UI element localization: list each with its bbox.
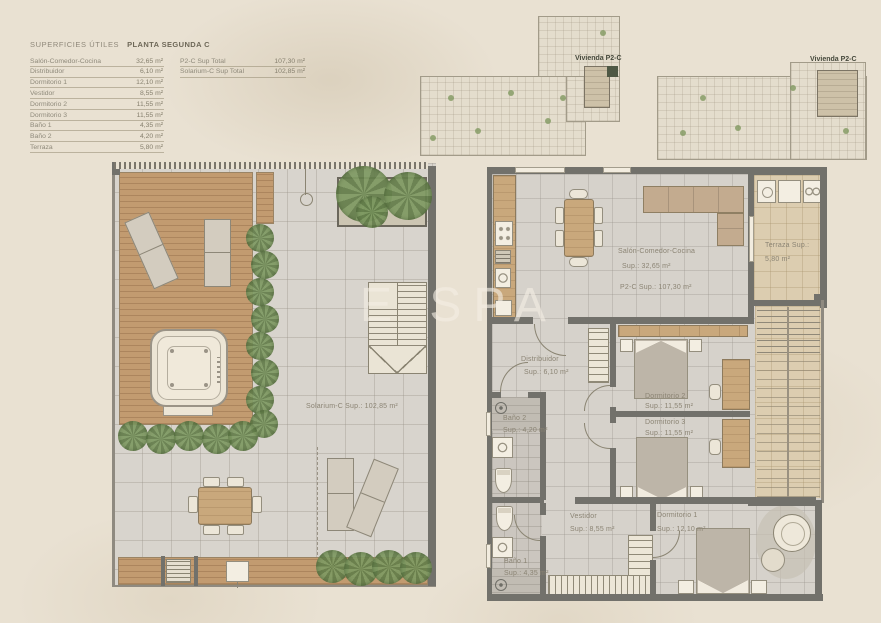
bano1-label: Baño 1 xyxy=(504,558,527,565)
distribuidor-closet xyxy=(588,328,609,383)
dining-chair xyxy=(569,189,588,199)
window-bano1 xyxy=(486,544,491,568)
bano1-sup-label: Sup.: 4,35 m² xyxy=(504,570,549,577)
wall-corridor-1 xyxy=(610,317,616,387)
wall-corridor-3 xyxy=(610,448,616,503)
outdoor-chair xyxy=(203,525,220,535)
dorm1-sup-label: Sup.: 12,10 m² xyxy=(657,526,706,533)
distribuidor-sup-label: Sup.: 6,10 m² xyxy=(524,369,569,376)
solarium-left-wall xyxy=(112,163,115,587)
nightstand xyxy=(751,580,767,594)
nightstand xyxy=(689,339,702,352)
wall-terraza-top xyxy=(748,167,827,175)
wall-bano1-right-a xyxy=(540,503,546,515)
legend-row: Baño 14,35 m² xyxy=(30,121,164,132)
legend-row: Distribuidor6,10 m² xyxy=(30,67,164,78)
stairs-rail xyxy=(787,307,789,497)
legend-title-prefix: SUPERFICIES ÚTILES xyxy=(30,40,119,49)
outdoor-chair xyxy=(188,496,198,513)
deck-bench xyxy=(226,561,249,582)
bed-pillows xyxy=(698,580,748,593)
dining-chair xyxy=(569,257,588,267)
wall-bano2-bano1 xyxy=(487,497,544,503)
wall-vestidor-dorm1-b xyxy=(650,560,656,596)
sun-lounger xyxy=(204,219,231,287)
paving-change-line xyxy=(317,447,318,555)
wall-salon-distribuidor xyxy=(487,317,533,324)
outdoor-chair xyxy=(203,477,220,487)
legend-title: SUPERFICIES ÚTILESPLANTA SEGUNDA C xyxy=(30,40,306,49)
outdoor-chair xyxy=(252,496,262,513)
legend-row: Vestidor8,55 m² xyxy=(30,88,164,99)
legend-row: Baño 24,20 m² xyxy=(30,131,164,142)
tree-plant xyxy=(384,172,432,220)
desk-chair xyxy=(709,439,721,455)
wall-vestidor-dorm1-a xyxy=(650,503,656,531)
wall-bano1-right-b xyxy=(540,536,546,595)
desk-dorm2 xyxy=(722,359,750,410)
solarium-top-railing xyxy=(114,162,428,169)
desk-dorm3 xyxy=(722,419,750,468)
sink-bano1 xyxy=(492,537,513,558)
legend-totals-table: P2-C Sup Total107,30 m² Solarium-C Sup T… xyxy=(180,56,306,78)
distribuidor-label: Distribuidor xyxy=(521,356,559,363)
wall-terraza-right xyxy=(820,167,827,308)
sofa xyxy=(643,186,744,213)
kitchen-appliance xyxy=(495,300,512,316)
window-salon-1 xyxy=(515,167,565,173)
dorm3-sup-label: Sup.: 11,55 m² xyxy=(645,430,693,437)
outdoor-shower-icon xyxy=(300,193,313,206)
vestidor-sup-label: Sup.: 8,55 m² xyxy=(570,526,615,533)
wall-dorm1-right xyxy=(815,500,822,595)
wall-dorm3-dorm1 xyxy=(616,497,816,504)
sofa-chaise xyxy=(717,213,744,246)
washer-icon xyxy=(757,180,776,203)
shower-pole xyxy=(305,169,306,195)
kitchen-sink-icon xyxy=(495,268,511,288)
keyplan1-label: Vivienda P2-C xyxy=(575,55,622,62)
side-table xyxy=(761,548,785,572)
deck-post xyxy=(161,556,165,586)
legend-room-table: Salón-Comedor-Cocina32,65 m² Distribuido… xyxy=(30,56,164,153)
legend-row: Terraza5,80 m² xyxy=(30,142,164,153)
legend-total-row: Solarium-C Sup Total102,85 m² xyxy=(180,67,306,78)
wood-deck-strip xyxy=(256,172,274,224)
legend-row: Dormitorio 112,10 m² xyxy=(30,78,164,89)
stove-icon xyxy=(495,221,513,246)
legend-row: Dormitorio 211,55 m² xyxy=(30,99,164,110)
hot-tub xyxy=(150,329,228,407)
armchair-seat xyxy=(781,522,805,546)
solarium-area-label: Solarium-C Sup.: 102,85 m² xyxy=(306,403,398,410)
window-bano2 xyxy=(486,412,491,436)
dining-chair xyxy=(594,230,603,247)
salon-total-label: P2-C Sup.: 107,30 m² xyxy=(620,284,692,291)
legend-row: Salón-Comedor-Cocina32,65 m² xyxy=(30,56,164,67)
terraza-label: Terraza Sup.: xyxy=(765,242,809,249)
window-salon-2 xyxy=(603,167,631,173)
wall-terraza-bottom xyxy=(752,300,822,306)
vestidor-wardrobe-long xyxy=(548,575,653,596)
terraza-counter xyxy=(778,180,801,203)
dining-table xyxy=(564,199,594,257)
bano2-sup-label: Sup.: 4,20 m² xyxy=(503,427,548,434)
wall-dorm2-dorm3 xyxy=(616,411,750,417)
vestidor-label: Vestidor xyxy=(570,513,597,520)
desk-chair xyxy=(709,384,721,400)
outdoor-chair xyxy=(227,525,244,535)
dorm3-label: Dormitorio 3 xyxy=(645,419,686,426)
legend-title-plan: PLANTA SEGUNDA C xyxy=(127,40,210,49)
dorm1-label: Dormitorio 1 xyxy=(657,512,698,519)
terraza-sup-label: 5,80 m² xyxy=(765,256,790,263)
dining-chair xyxy=(555,230,564,247)
wall-bano2-top-a xyxy=(487,392,501,398)
outdoor-chair xyxy=(227,477,244,487)
wall-left xyxy=(487,167,492,600)
keyplan2-label: Vivienda P2-C xyxy=(810,56,857,63)
deck-post xyxy=(194,556,198,586)
outdoor-dining-table xyxy=(198,487,252,525)
sink-bano2 xyxy=(492,437,513,458)
keyplan1-green-marker xyxy=(607,66,618,77)
keyplan2-highlighted-unit xyxy=(817,70,858,117)
tree-plant xyxy=(356,196,388,228)
dining-chair xyxy=(555,207,564,224)
glass-door-terraza xyxy=(749,216,754,262)
kitchen-grill-icon xyxy=(495,250,511,264)
legend-total-row: P2-C Sup Total107,30 m² xyxy=(180,56,306,67)
shower-icon-bano2 xyxy=(495,402,507,414)
nightstand xyxy=(678,580,694,594)
dorm2-wardrobe xyxy=(618,325,748,337)
bed-pillows xyxy=(636,341,686,353)
salon-sup-label: Sup.: 32,65 m² xyxy=(622,263,671,270)
dorm2-label: Dormitorio 2 xyxy=(645,393,686,400)
legend-row: Dormitorio 311,55 m² xyxy=(30,110,164,121)
wall-bath-right xyxy=(540,392,546,500)
deck-ladder xyxy=(166,559,191,583)
shower-icon-bano1 xyxy=(495,579,507,591)
wall-vestidor-top xyxy=(575,497,616,504)
wall-salon-dorm2 xyxy=(568,317,754,324)
dining-chair xyxy=(594,207,603,224)
keyplan1-main xyxy=(420,76,586,156)
hot-tub-controls xyxy=(217,357,220,383)
bano2-label: Baño 2 xyxy=(503,415,526,422)
salon-label: Salón-Comedor-Cocina xyxy=(618,248,695,255)
solarium-right-wall xyxy=(428,166,436,586)
legend: SUPERFICIES ÚTILESPLANTA SEGUNDA C Salón… xyxy=(30,40,306,153)
dorm2-sup-label: Sup.: 11,55 m² xyxy=(645,403,693,410)
wall-landing-right xyxy=(821,300,824,503)
nightstand xyxy=(620,339,633,352)
floorplan-sheet: SUPERFICIES ÚTILESPLANTA SEGUNDA C Salón… xyxy=(0,0,881,623)
